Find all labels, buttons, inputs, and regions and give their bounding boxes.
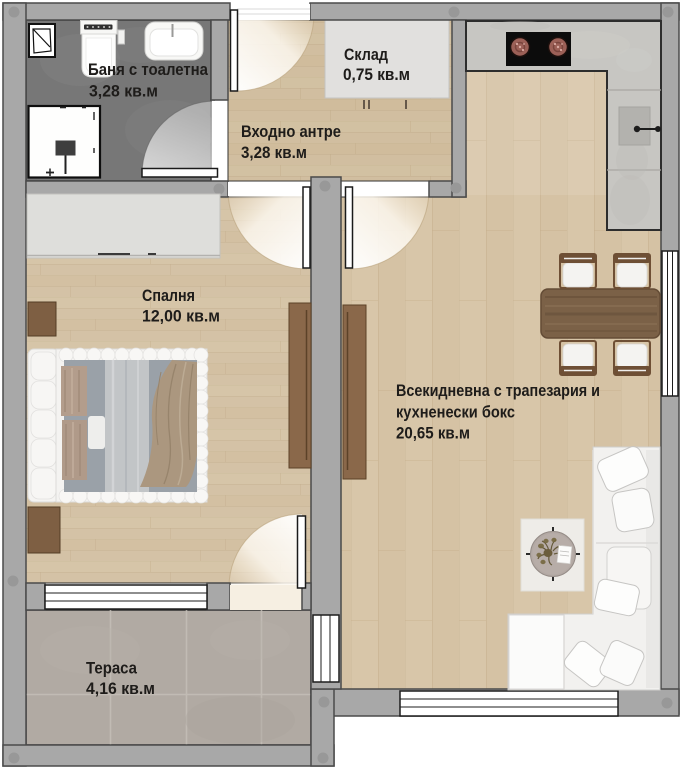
svg-text:4,16 кв.м: 4,16 кв.м: [86, 679, 155, 698]
svg-text:Баня с тоалетна: Баня с тоалетна: [88, 60, 208, 79]
svg-text:Спалня: Спалня: [142, 286, 195, 305]
svg-text:кухненески бокс: кухненески бокс: [396, 403, 515, 422]
svg-text:Склад: Склад: [344, 45, 388, 64]
svg-text:3,28 кв.м: 3,28 кв.м: [241, 143, 307, 162]
svg-text:20,65 кв.м: 20,65 кв.м: [396, 424, 470, 443]
svg-text:3,28 кв.м: 3,28 кв.м: [89, 82, 158, 101]
svg-text:12,00 кв.м: 12,00 кв.м: [142, 307, 220, 326]
svg-text:0,75 кв.м: 0,75 кв.м: [343, 65, 410, 84]
svg-text:Тераса: Тераса: [86, 659, 137, 678]
svg-text:Входно антре: Входно антре: [241, 122, 341, 141]
svg-text:Всекидневна с трапезария и: Всекидневна с трапезария и: [396, 381, 600, 400]
